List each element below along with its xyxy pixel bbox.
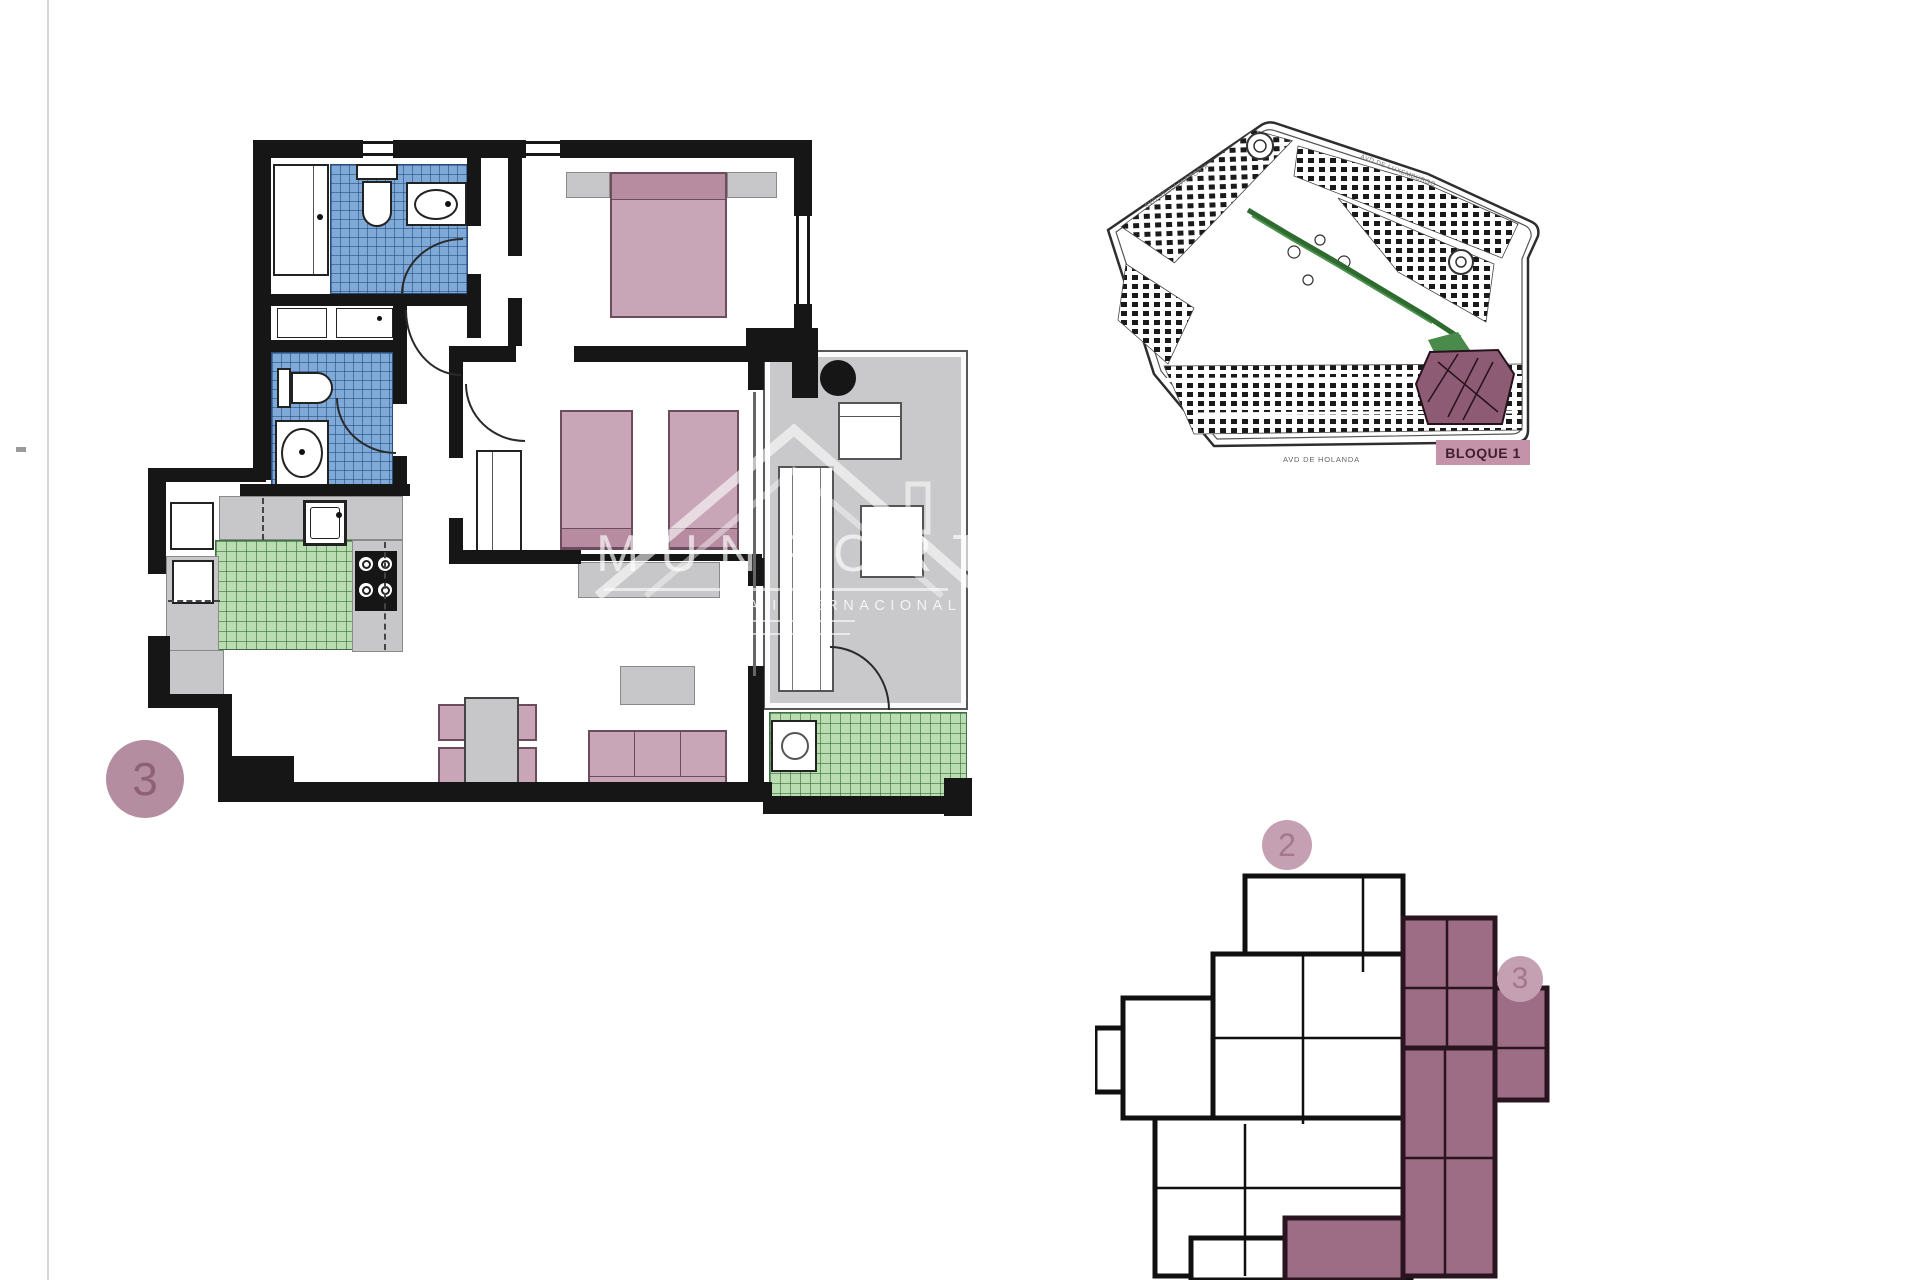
cabinet-dashed-line [384, 542, 386, 650]
unit-number-badge: 3 [106, 740, 184, 818]
key-unit-number: 3 [1512, 962, 1529, 996]
door-arc [405, 310, 461, 376]
door-arc [830, 646, 890, 710]
key-unit-badge: 2 [1262, 820, 1312, 870]
wall [148, 694, 232, 708]
bloque-label: BLOQUE 1 [1436, 440, 1530, 465]
door-arc [336, 398, 396, 454]
dining-chair [438, 747, 466, 784]
bed-headboard [612, 174, 725, 200]
burner-icon [378, 583, 392, 597]
wall [393, 456, 407, 492]
kitchen-sink-icon [303, 500, 347, 546]
wall [393, 140, 526, 158]
wall [218, 756, 294, 802]
wall [449, 362, 463, 458]
toilet-icon [277, 368, 291, 408]
sofa-seat-line [680, 732, 681, 776]
door-handle [317, 214, 323, 220]
wall [794, 304, 812, 358]
coffee-table [620, 666, 695, 705]
sofa [588, 730, 727, 792]
faucet-dot [445, 201, 451, 207]
floorplan-page: MUNPORT INMOBILIARIA INTERNACIONAL 3 [0, 0, 1920, 1280]
left-rule [47, 0, 49, 1280]
bathroom-2-floor [271, 352, 393, 490]
wardrobe [273, 164, 329, 276]
faucet-dot [336, 512, 342, 518]
main-floor-plan [0, 0, 1920, 1280]
watermark-rule [728, 633, 850, 635]
kitchen-counter [219, 496, 403, 540]
appliance-icon [172, 560, 214, 604]
watermark-house-logo [560, 400, 1020, 640]
site-plan: AVD REINA VICTORIA AVD DE LUXEMBURGO AVD… [1098, 112, 1558, 474]
wall [218, 694, 232, 776]
plant-icon [820, 360, 856, 396]
wall [748, 352, 764, 390]
watermark-rule [604, 588, 948, 591]
wall [449, 518, 463, 562]
armchair [838, 402, 902, 460]
wall [794, 158, 812, 216]
lounger-line [820, 468, 821, 690]
bathroom-1-floor [330, 164, 468, 294]
dining-chair [438, 704, 466, 741]
terrace-floor [763, 350, 968, 710]
wall [748, 558, 764, 586]
bed-footboard [562, 528, 631, 548]
wall [449, 550, 581, 564]
cabinet-dashed-line [168, 600, 220, 602]
wall [508, 158, 522, 256]
armchair-back-line [840, 416, 900, 417]
hall-closet [277, 308, 327, 338]
window [526, 141, 560, 156]
wall [944, 778, 972, 816]
wall [253, 158, 271, 480]
wall [271, 294, 467, 306]
wall [748, 666, 764, 786]
sink-icon [281, 428, 323, 478]
hall-closet [336, 308, 393, 338]
wall [467, 158, 481, 226]
faucet-dot [299, 449, 305, 455]
kitchen-sink-basin [310, 507, 340, 539]
lounger-line [792, 468, 793, 690]
wall [467, 274, 481, 338]
slider-door-line [753, 392, 756, 676]
wall [240, 484, 410, 496]
wall [271, 340, 393, 352]
toilet-icon [356, 164, 398, 180]
door-arc [401, 238, 463, 294]
wall [166, 468, 266, 482]
wall [763, 796, 969, 814]
washing-machine-icon [771, 720, 817, 772]
kitchen-counter [166, 556, 219, 652]
window [363, 141, 393, 156]
wardrobe-door-line [492, 452, 493, 554]
burner-icon [378, 557, 392, 571]
laundry-floor [769, 712, 967, 798]
wall [579, 554, 762, 561]
street-label: AVD DE HOLANDA [1283, 455, 1360, 464]
bed-double [610, 172, 727, 318]
bed-footboard [670, 528, 737, 548]
vanity [406, 182, 467, 226]
sink-icon [414, 189, 458, 220]
dining-chair [509, 704, 537, 741]
sofa-seat-line [634, 732, 635, 776]
left-tick [16, 447, 26, 452]
sun-lounger [778, 466, 834, 692]
watermark-rule [737, 620, 855, 622]
bed-single [560, 410, 633, 550]
key-unit-badge: 3 [1497, 956, 1543, 1002]
wall [449, 346, 810, 362]
cabinet-dashed-line [262, 498, 264, 540]
kitchen-counter [166, 650, 224, 698]
wall [792, 346, 818, 398]
stove-icon [355, 551, 397, 611]
door-handle [377, 316, 382, 321]
toilet-icon [291, 372, 333, 404]
washer-drum [781, 732, 809, 760]
bed-single [668, 410, 739, 550]
door-opening [516, 346, 574, 362]
key-plan [1095, 858, 1555, 1280]
sofa-front-line [590, 776, 725, 777]
roundabout-icon [1449, 250, 1473, 274]
wall [288, 782, 772, 802]
nightstand [727, 172, 777, 198]
bloque1-building [1416, 350, 1514, 424]
wall [148, 636, 170, 702]
burner-icon [359, 557, 373, 571]
toilet-icon [362, 181, 392, 227]
sideboard [578, 562, 720, 598]
burner-icon [359, 583, 373, 597]
kitchen-counter [352, 540, 403, 652]
roundabout-icon [1247, 133, 1273, 159]
building-band [1118, 264, 1194, 364]
kitchen-floor [215, 540, 353, 650]
wall [393, 306, 407, 404]
nightstand [566, 172, 610, 198]
wardrobe-door-line [313, 166, 314, 274]
wall [508, 298, 522, 352]
fridge-icon [170, 502, 214, 550]
pedestal-sink [275, 420, 329, 486]
wall [560, 140, 812, 158]
window [796, 216, 810, 304]
unit-number: 3 [132, 752, 158, 806]
watermark-subtitle: INMOBILIARIA INTERNACIONAL [600, 598, 961, 614]
dining-table [464, 697, 519, 795]
wall [746, 328, 818, 346]
bloque-label-text: BLOQUE 1 [1445, 445, 1521, 461]
door-arc [465, 384, 525, 442]
side-table [860, 505, 924, 578]
wardrobe [476, 450, 522, 556]
watermark: MUNPORT INMOBILIARIA INTERNACIONAL [0, 0, 1920, 1280]
wall [148, 468, 166, 574]
wall [253, 140, 363, 158]
key-unit-number: 2 [1278, 827, 1296, 864]
dining-chair [509, 747, 537, 784]
watermark-brand: MUNPORT [596, 524, 1005, 584]
